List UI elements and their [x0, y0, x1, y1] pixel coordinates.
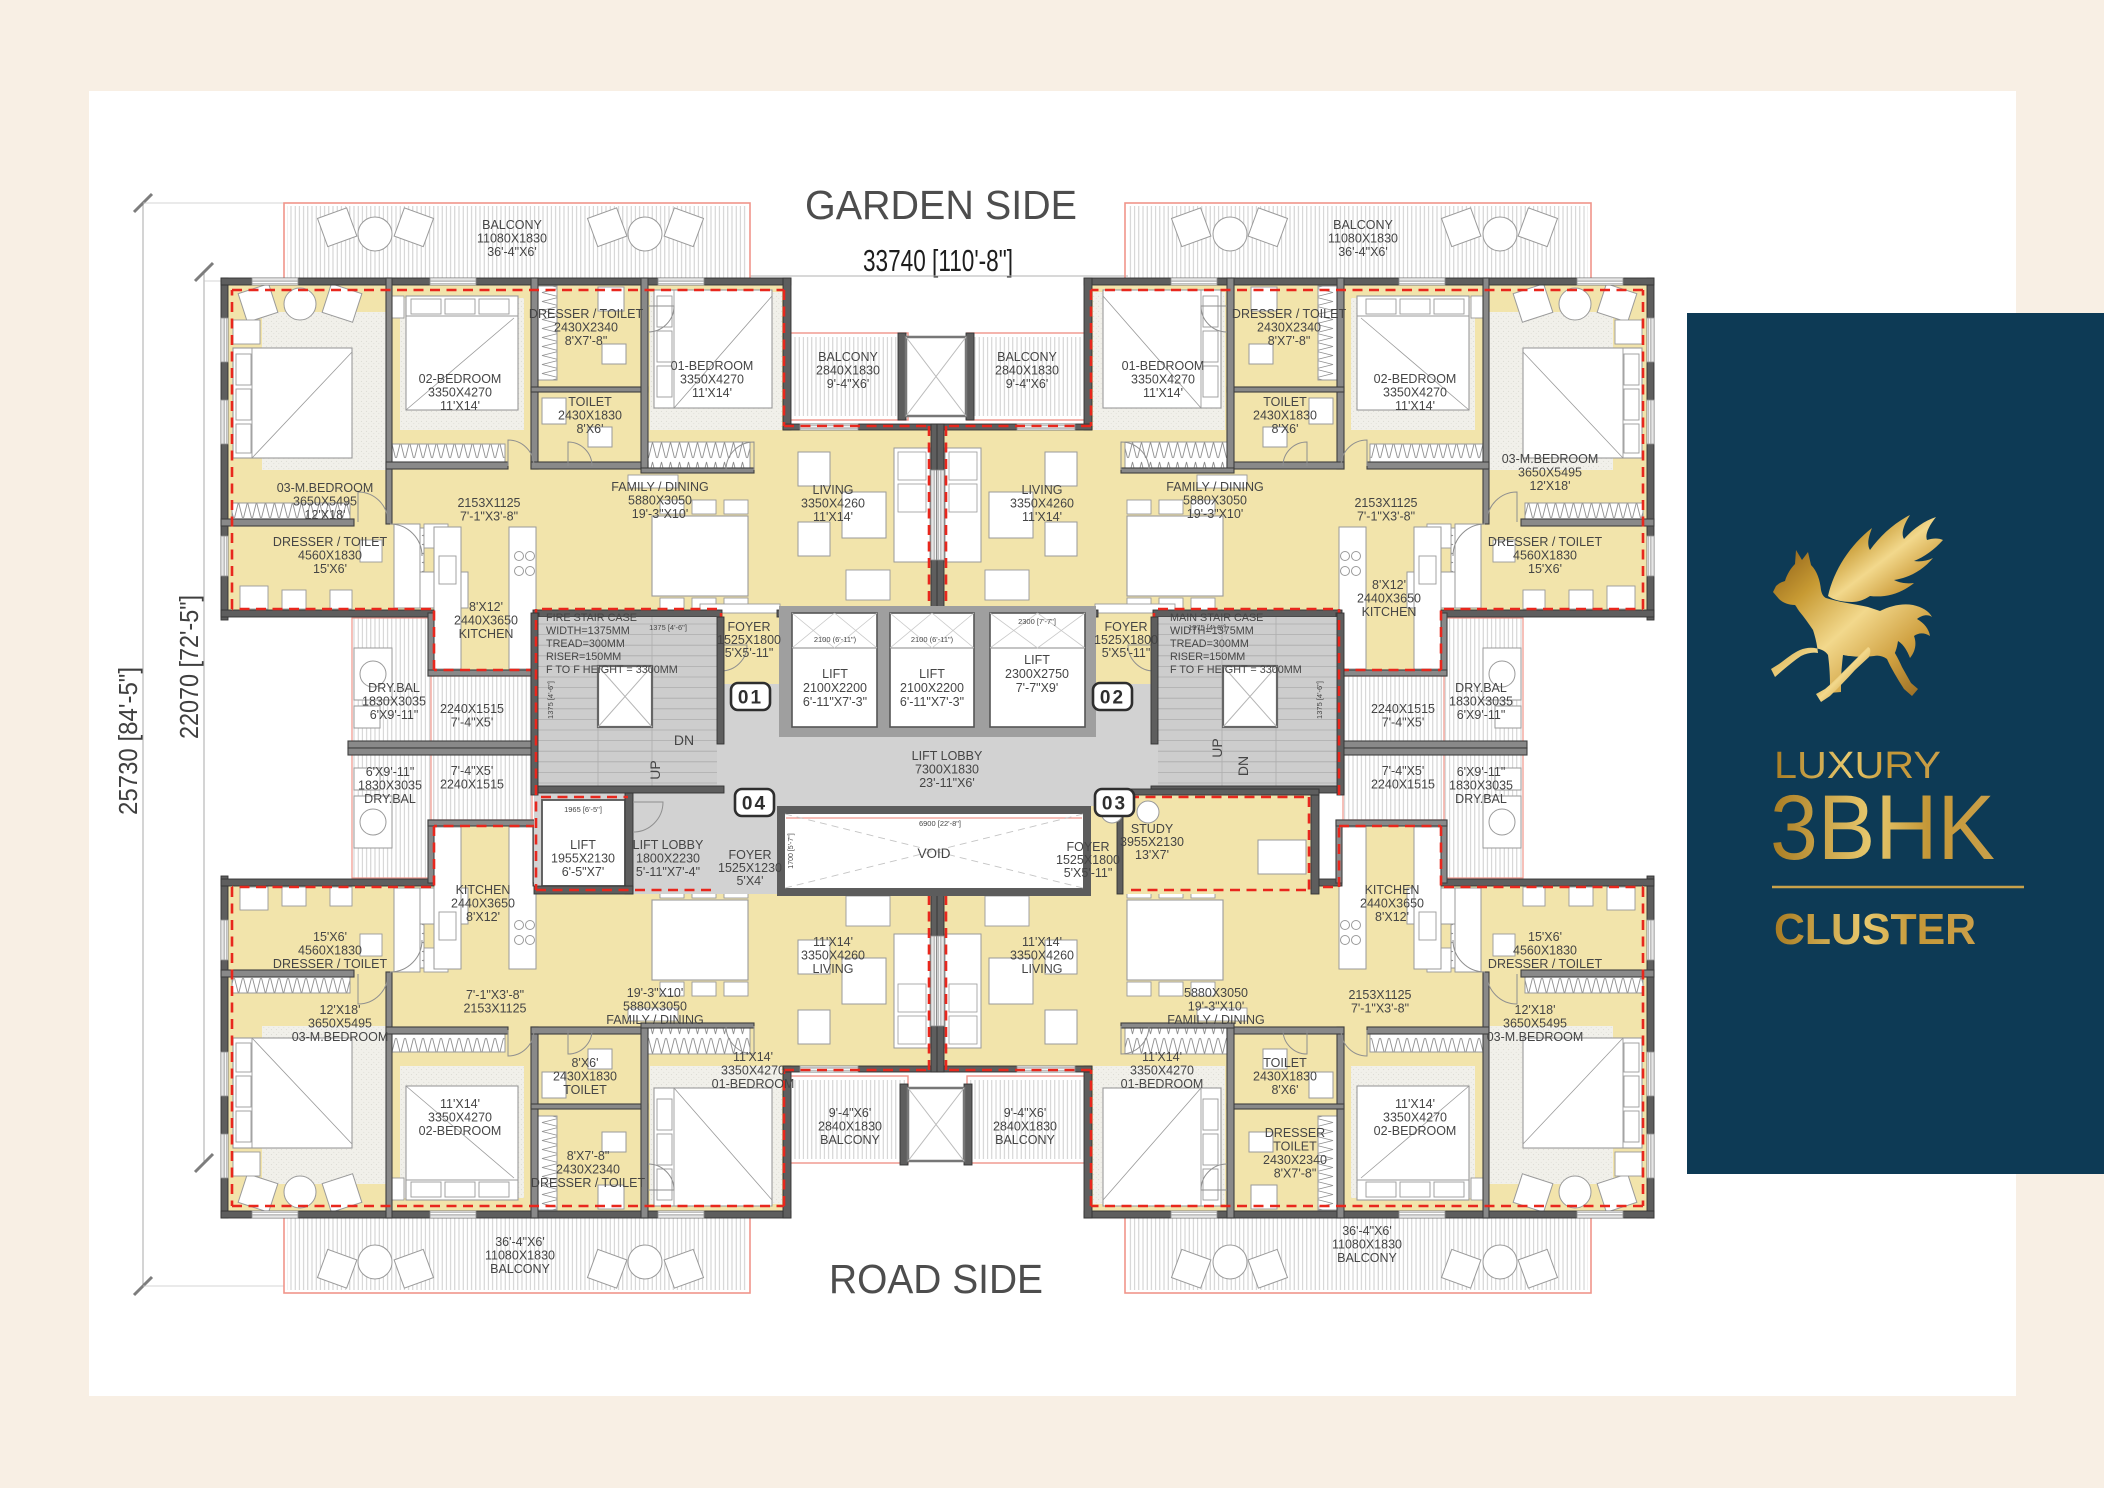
svg-text:BALCONY: BALCONY — [482, 218, 542, 232]
svg-text:GARDEN SIDE: GARDEN SIDE — [805, 182, 1077, 228]
svg-text:TOILET: TOILET — [1263, 395, 1307, 409]
svg-text:RISER=150MM: RISER=150MM — [1170, 651, 1245, 663]
svg-text:BALCONY: BALCONY — [1333, 218, 1393, 232]
svg-text:11'X14': 11'X14' — [813, 935, 853, 949]
svg-text:6'X9'-11": 6'X9'-11" — [1457, 708, 1506, 722]
svg-text:KITCHEN: KITCHEN — [1365, 883, 1420, 897]
svg-text:7'-4"X5': 7'-4"X5' — [451, 764, 494, 778]
svg-text:1525X1800: 1525X1800 — [717, 633, 781, 647]
svg-text:FOYER: FOYER — [728, 848, 771, 862]
svg-text:LIFT: LIFT — [919, 667, 945, 681]
svg-text:01-BEDROOM: 01-BEDROOM — [1122, 359, 1205, 373]
svg-text:2240X1515: 2240X1515 — [440, 778, 504, 792]
svg-text:DRY.BAL: DRY.BAL — [364, 792, 416, 806]
svg-text:BALCONY: BALCONY — [997, 350, 1057, 364]
svg-text:36'-4"X6': 36'-4"X6' — [1338, 245, 1388, 259]
svg-text:7'-4"X5': 7'-4"X5' — [1382, 764, 1425, 778]
svg-text:BALCONY: BALCONY — [818, 350, 878, 364]
svg-text:FAMILY / DINING: FAMILY / DINING — [1167, 1013, 1264, 1027]
svg-text:TREAD=300MM: TREAD=300MM — [1170, 638, 1249, 650]
svg-text:STUDY: STUDY — [1131, 822, 1174, 836]
svg-text:11'X14': 11'X14' — [1022, 935, 1062, 949]
svg-text:5'X5'-11": 5'X5'-11" — [725, 646, 774, 660]
svg-text:1830X3035: 1830X3035 — [1449, 695, 1513, 709]
svg-text:LIVING: LIVING — [1022, 962, 1063, 976]
svg-text:7'-4"X5': 7'-4"X5' — [1382, 716, 1425, 730]
svg-text:FAMILY / DINING: FAMILY / DINING — [606, 1013, 703, 1027]
svg-text:4560X1830: 4560X1830 — [298, 944, 362, 958]
svg-text:8'X7'-8": 8'X7'-8" — [1274, 1167, 1317, 1181]
svg-text:7'-1"X3'-8": 7'-1"X3'-8" — [460, 510, 518, 524]
svg-text:11'X14': 11'X14' — [440, 1097, 480, 1111]
svg-text:FOYER: FOYER — [727, 620, 770, 634]
svg-text:6'X9'-11": 6'X9'-11" — [370, 708, 419, 722]
svg-text:2100X2200: 2100X2200 — [803, 681, 867, 695]
svg-text:2100 (6'-11"): 2100 (6'-11") — [814, 635, 857, 644]
svg-text:19'-3"X10': 19'-3"X10' — [632, 507, 688, 521]
svg-text:7'-1"X3'-8": 7'-1"X3'-8" — [466, 988, 524, 1002]
svg-text:3955X2130: 3955X2130 — [1120, 835, 1184, 849]
svg-text:9'-4"X6': 9'-4"X6' — [827, 377, 870, 391]
svg-text:8'X6': 8'X6' — [571, 1056, 598, 1070]
svg-text:2430X2340: 2430X2340 — [554, 321, 618, 335]
svg-text:2240X1515: 2240X1515 — [440, 702, 504, 716]
svg-text:8'X12': 8'X12' — [469, 600, 503, 614]
svg-text:FAMILY / DINING: FAMILY / DINING — [611, 480, 708, 494]
svg-text:8'X7'-8": 8'X7'-8" — [1268, 334, 1311, 348]
svg-text:12'X18': 12'X18' — [305, 508, 346, 522]
svg-text:2430X1830: 2430X1830 — [553, 1070, 617, 1084]
svg-text:7'-4"X5': 7'-4"X5' — [451, 716, 494, 730]
svg-text:LIFT: LIFT — [1024, 653, 1050, 667]
svg-text:03-M.BEDROOM: 03-M.BEDROOM — [1502, 452, 1599, 466]
svg-text:LIVING: LIVING — [813, 483, 854, 497]
svg-text:2440X3650: 2440X3650 — [1360, 897, 1424, 911]
svg-text:DRESSER / TOILET: DRESSER / TOILET — [531, 1176, 646, 1190]
svg-text:KITCHEN: KITCHEN — [456, 883, 511, 897]
svg-text:FOYER: FOYER — [1066, 840, 1109, 854]
svg-text:9'-4"X6': 9'-4"X6' — [829, 1106, 872, 1120]
svg-text:2430X1830: 2430X1830 — [558, 409, 622, 423]
svg-text:7'-1"X3'-8": 7'-1"X3'-8" — [1351, 1002, 1409, 1016]
svg-text:RISER=150MM: RISER=150MM — [546, 651, 621, 663]
svg-text:3350X4260: 3350X4260 — [801, 497, 865, 511]
svg-text:7'-1"X3'-8": 7'-1"X3'-8" — [1357, 510, 1415, 524]
svg-text:3350X4270: 3350X4270 — [721, 1064, 785, 1078]
svg-text:LIFT LOBBY: LIFT LOBBY — [633, 838, 704, 852]
svg-text:BALCONY: BALCONY — [820, 1133, 880, 1147]
svg-text:5'X5'-11": 5'X5'-11" — [1102, 646, 1151, 660]
svg-text:1800X2230: 1800X2230 — [636, 852, 700, 866]
svg-text:DRESSER / TOILET: DRESSER / TOILET — [1488, 957, 1603, 971]
svg-text:11'X14': 11'X14' — [1142, 1050, 1182, 1064]
svg-text:UP: UP — [1209, 738, 1225, 757]
svg-text:F TO F HEIGHT = 3300MM: F TO F HEIGHT = 3300MM — [1170, 664, 1302, 676]
svg-text:01-BEDROOM: 01-BEDROOM — [1121, 1077, 1204, 1091]
svg-text:15'X6': 15'X6' — [313, 562, 347, 576]
svg-text:KITCHEN: KITCHEN — [459, 627, 514, 641]
svg-text:2153X1125: 2153X1125 — [1348, 988, 1411, 1002]
svg-text:3350X4270: 3350X4270 — [1131, 373, 1195, 387]
svg-text:1375 [4'-6"]: 1375 [4'-6"] — [1315, 681, 1324, 719]
svg-text:TREAD=300MM: TREAD=300MM — [546, 638, 625, 650]
svg-text:KITCHEN: KITCHEN — [1362, 605, 1417, 619]
svg-text:36'-4"X6': 36'-4"X6' — [1342, 1224, 1392, 1238]
svg-text:11'X14': 11'X14' — [733, 1050, 773, 1064]
svg-text:02-BEDROOM: 02-BEDROOM — [1374, 1124, 1457, 1138]
svg-text:1375 [4'-6"]: 1375 [4'-6"] — [649, 623, 687, 632]
svg-text:2840X1830: 2840X1830 — [816, 364, 880, 378]
svg-text:3650X5495: 3650X5495 — [1518, 466, 1582, 480]
svg-text:4560X1830: 4560X1830 — [1513, 549, 1577, 563]
svg-text:LIVING: LIVING — [1022, 483, 1063, 497]
svg-text:11080X1830: 11080X1830 — [477, 232, 547, 246]
svg-text:15'X6': 15'X6' — [1528, 562, 1562, 576]
svg-text:FIRE STAIR CASE: FIRE STAIR CASE — [546, 612, 637, 624]
svg-text:3350X4270: 3350X4270 — [1383, 386, 1447, 400]
svg-text:TOILET: TOILET — [1273, 1140, 1317, 1154]
svg-text:23'-11"X6': 23'-11"X6' — [919, 776, 975, 790]
svg-text:03-M.BEDROOM: 03-M.BEDROOM — [292, 1030, 389, 1044]
svg-text:2840X1830: 2840X1830 — [818, 1120, 882, 1134]
svg-text:ROAD SIDE: ROAD SIDE — [829, 1256, 1043, 1302]
svg-text:8'X7'-8": 8'X7'-8" — [565, 334, 608, 348]
svg-text:3350X4270: 3350X4270 — [428, 1111, 492, 1125]
svg-text:6'-5"X7': 6'-5"X7' — [562, 865, 605, 879]
svg-text:3650X5495: 3650X5495 — [308, 1017, 372, 1031]
svg-text:2100X2200: 2100X2200 — [900, 681, 964, 695]
svg-text:12'X18': 12'X18' — [1515, 1003, 1556, 1017]
svg-text:LIFT LOBBY: LIFT LOBBY — [912, 749, 983, 763]
svg-text:3350X4260: 3350X4260 — [1010, 497, 1074, 511]
svg-text:2300X2750: 2300X2750 — [1005, 667, 1069, 681]
svg-text:3350X4270: 3350X4270 — [428, 386, 492, 400]
svg-text:01-BEDROOM: 01-BEDROOM — [712, 1077, 795, 1091]
svg-text:2440X3650: 2440X3650 — [451, 897, 515, 911]
svg-text:BALCONY: BALCONY — [490, 1262, 550, 1276]
svg-text:5'X5'-11": 5'X5'-11" — [1064, 866, 1113, 880]
svg-text:19'-3"X10': 19'-3"X10' — [627, 986, 683, 1000]
svg-text:3BHK: 3BHK — [1770, 777, 1995, 879]
svg-text:DN: DN — [674, 732, 694, 748]
svg-text:1700 [5'-7"]: 1700 [5'-7"] — [788, 833, 795, 868]
svg-text:2440X3650: 2440X3650 — [1357, 592, 1421, 606]
svg-text:1525X1800: 1525X1800 — [1056, 853, 1120, 867]
svg-text:LIFT: LIFT — [570, 838, 596, 852]
svg-text:3350X4260: 3350X4260 — [801, 949, 865, 963]
svg-text:UP: UP — [647, 760, 663, 779]
svg-text:1375 [4'-6"]: 1375 [4'-6"] — [546, 681, 555, 719]
svg-text:3350X4270: 3350X4270 — [1383, 1111, 1447, 1125]
svg-text:2153X1125: 2153X1125 — [457, 496, 520, 510]
svg-text:11'X14': 11'X14' — [1395, 1097, 1435, 1111]
svg-text:6'X9'-11": 6'X9'-11" — [366, 765, 415, 779]
svg-text:3350X4270: 3350X4270 — [680, 373, 744, 387]
svg-text:2430X2340: 2430X2340 — [1263, 1153, 1327, 1167]
svg-text:VOID: VOID — [917, 846, 950, 861]
svg-text:3350X4270: 3350X4270 — [1130, 1064, 1194, 1078]
svg-text:2153X1125: 2153X1125 — [1354, 496, 1417, 510]
svg-text:TOILET: TOILET — [568, 395, 612, 409]
svg-text:DRESSER / TOILET: DRESSER / TOILET — [1232, 307, 1347, 321]
svg-text:4560X1830: 4560X1830 — [1513, 944, 1577, 958]
svg-text:02-BEDROOM: 02-BEDROOM — [1374, 372, 1457, 386]
svg-text:1830X3035: 1830X3035 — [362, 695, 426, 709]
svg-text:11'X14': 11'X14' — [1395, 399, 1435, 413]
svg-text:2240X1515: 2240X1515 — [1371, 702, 1435, 716]
svg-text:11'X14': 11'X14' — [813, 510, 853, 524]
svg-text:1830X3035: 1830X3035 — [1449, 779, 1513, 793]
svg-text:DRESSER / TOILET: DRESSER / TOILET — [273, 535, 388, 549]
svg-text:5'X4': 5'X4' — [736, 874, 763, 888]
svg-text:03-M.BEDROOM: 03-M.BEDROOM — [1487, 1030, 1584, 1044]
svg-text:2240X1515: 2240X1515 — [1371, 778, 1435, 792]
svg-text:36'-4"X6': 36'-4"X6' — [487, 245, 537, 259]
svg-text:02-BEDROOM: 02-BEDROOM — [419, 372, 502, 386]
svg-text:2840X1830: 2840X1830 — [993, 1120, 1057, 1134]
svg-text:33740 [110'-8"]: 33740 [110'-8"] — [863, 243, 1013, 278]
svg-text:5880X3050: 5880X3050 — [1184, 986, 1248, 1000]
svg-text:8'X12': 8'X12' — [1375, 910, 1409, 924]
svg-text:11080X1830: 11080X1830 — [1332, 1238, 1402, 1252]
svg-text:1955X2130: 1955X2130 — [551, 852, 615, 866]
svg-text:19'-3"X10': 19'-3"X10' — [1187, 507, 1243, 521]
svg-text:1830X3035: 1830X3035 — [358, 779, 422, 793]
svg-text:2153X1125: 2153X1125 — [463, 1002, 526, 1016]
svg-text:3650X5495: 3650X5495 — [1503, 1017, 1567, 1031]
svg-text:6900 [22'-8"]: 6900 [22'-8"] — [919, 819, 961, 828]
svg-text:5'-11"X7'-4": 5'-11"X7'-4" — [636, 865, 700, 879]
svg-text:8'X12': 8'X12' — [466, 910, 500, 924]
svg-text:5880X3050: 5880X3050 — [628, 494, 692, 508]
svg-text:2100 (6'-11"): 2100 (6'-11") — [911, 635, 954, 644]
svg-text:12'X18': 12'X18' — [320, 1003, 361, 1017]
svg-text:LIFT: LIFT — [822, 667, 848, 681]
svg-text:11'X14': 11'X14' — [692, 386, 732, 400]
svg-text:36'-4"X6': 36'-4"X6' — [495, 1235, 545, 1249]
svg-text:1965 [6'-5"]: 1965 [6'-5"] — [564, 805, 602, 814]
svg-text:15'X6': 15'X6' — [1528, 930, 1562, 944]
svg-text:5880X3050: 5880X3050 — [1183, 494, 1247, 508]
svg-text:2840X1830: 2840X1830 — [995, 364, 1059, 378]
svg-text:8'X6': 8'X6' — [1271, 422, 1298, 436]
svg-text:25730 [84'-5"]: 25730 [84'-5"] — [113, 667, 143, 815]
svg-text:7300X1830: 7300X1830 — [915, 763, 979, 777]
svg-text:01: 01 — [738, 688, 763, 709]
svg-text:CLUSTER: CLUSTER — [1774, 905, 1976, 954]
svg-text:02: 02 — [1100, 688, 1125, 709]
svg-text:2430X1830: 2430X1830 — [1253, 1070, 1317, 1084]
svg-text:FAMILY / DINING: FAMILY / DINING — [1166, 480, 1263, 494]
svg-text:FOYER: FOYER — [1104, 620, 1147, 634]
svg-text:13'X7': 13'X7' — [1135, 848, 1169, 862]
svg-text:03: 03 — [1102, 794, 1127, 815]
svg-text:BALCONY: BALCONY — [1337, 1251, 1397, 1265]
svg-text:11'X14': 11'X14' — [1022, 510, 1062, 524]
svg-text:8'X6': 8'X6' — [576, 422, 603, 436]
svg-text:7'-7"X9': 7'-7"X9' — [1016, 681, 1059, 695]
svg-text:02-BEDROOM: 02-BEDROOM — [419, 1124, 502, 1138]
svg-text:8'X12': 8'X12' — [1372, 578, 1406, 592]
svg-text:5880X3050: 5880X3050 — [623, 1000, 687, 1014]
svg-text:1525X1800: 1525X1800 — [1094, 633, 1158, 647]
svg-text:11'X14': 11'X14' — [1143, 386, 1183, 400]
svg-text:19'-3"X10': 19'-3"X10' — [1188, 1000, 1244, 1014]
svg-text:15'X6': 15'X6' — [313, 930, 347, 944]
svg-text:DN: DN — [1235, 756, 1251, 776]
svg-text:4560X1830: 4560X1830 — [298, 549, 362, 563]
svg-text:1375 [4'-6"]: 1375 [4'-6"] — [1188, 623, 1226, 632]
svg-text:01-BEDROOM: 01-BEDROOM — [671, 359, 754, 373]
svg-text:TOILET: TOILET — [1263, 1056, 1307, 1070]
svg-text:1525X1230: 1525X1230 — [718, 861, 782, 875]
svg-text:DRESSER: DRESSER — [1265, 1126, 1325, 1140]
svg-text:2430X2340: 2430X2340 — [1257, 321, 1321, 335]
svg-text:LIVING: LIVING — [813, 962, 854, 976]
svg-text:11'X14': 11'X14' — [440, 399, 480, 413]
svg-text:2430X2340: 2430X2340 — [556, 1163, 620, 1177]
svg-text:22070 [72'-5"]: 22070 [72'-5"] — [174, 595, 204, 739]
svg-text:12'X18': 12'X18' — [1530, 479, 1571, 493]
svg-text:DRESSER / TOILET: DRESSER / TOILET — [529, 307, 644, 321]
svg-text:DRY.BAL: DRY.BAL — [1455, 681, 1507, 695]
svg-text:2300 [7'-7"]: 2300 [7'-7"] — [1018, 617, 1056, 626]
svg-text:3350X4260: 3350X4260 — [1010, 949, 1074, 963]
svg-text:WIDTH=1375MM: WIDTH=1375MM — [546, 625, 630, 637]
svg-text:DRESSER / TOILET: DRESSER / TOILET — [273, 957, 388, 971]
svg-text:03-M.BEDROOM: 03-M.BEDROOM — [277, 481, 374, 495]
svg-text:11080X1830: 11080X1830 — [1328, 232, 1398, 246]
svg-text:8'X7'-8": 8'X7'-8" — [567, 1149, 610, 1163]
svg-text:2440X3650: 2440X3650 — [454, 614, 518, 628]
svg-text:9'-4"X6': 9'-4"X6' — [1004, 1106, 1047, 1120]
svg-text:F TO F HEIGHT = 3300MM: F TO F HEIGHT = 3300MM — [546, 664, 678, 676]
svg-text:DRY.BAL: DRY.BAL — [368, 681, 420, 695]
svg-text:6'X9'-11": 6'X9'-11" — [1457, 765, 1506, 779]
svg-text:6'-11"X7'-3": 6'-11"X7'-3" — [803, 695, 867, 709]
svg-text:2430X1830: 2430X1830 — [1253, 409, 1317, 423]
svg-text:DRY.BAL: DRY.BAL — [1455, 792, 1507, 806]
svg-text:04: 04 — [742, 794, 767, 815]
svg-text:3650X5495: 3650X5495 — [293, 495, 357, 509]
svg-text:6'-11"X7'-3": 6'-11"X7'-3" — [900, 695, 964, 709]
svg-text:DRESSER / TOILET: DRESSER / TOILET — [1488, 535, 1603, 549]
svg-text:8'X6': 8'X6' — [1271, 1083, 1298, 1097]
svg-text:9'-4"X6': 9'-4"X6' — [1006, 377, 1049, 391]
svg-text:BALCONY: BALCONY — [995, 1133, 1055, 1147]
svg-text:11080X1830: 11080X1830 — [485, 1249, 555, 1263]
svg-text:TOILET: TOILET — [563, 1083, 607, 1097]
